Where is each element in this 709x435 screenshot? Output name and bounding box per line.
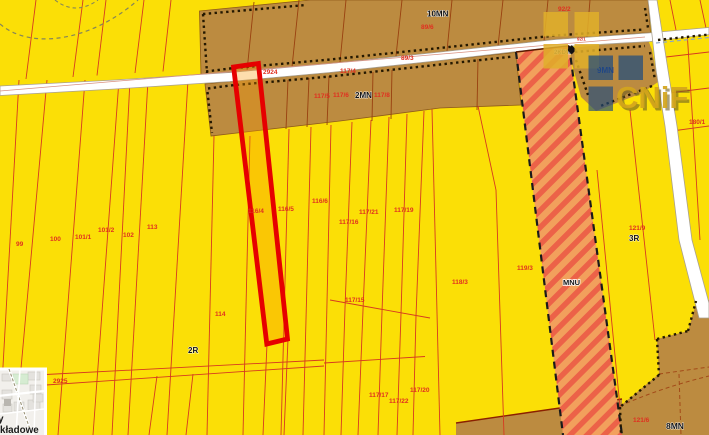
svg-text:MNU: MNU [563,278,580,287]
svg-text:101/1: 101/1 [75,234,92,241]
svg-text:117/21: 117/21 [359,209,379,216]
svg-text:117/16: 117/16 [339,219,359,226]
svg-text:10MN: 10MN [427,10,449,19]
svg-text:121/9: 121/9 [629,225,646,232]
svg-text:117/15: 117/15 [345,297,365,304]
svg-text:113: 113 [147,224,158,231]
svg-text:100: 100 [50,236,61,243]
svg-text:117/19: 117/19 [394,207,414,214]
svg-text:2925: 2925 [53,378,68,385]
svg-text:117/8: 117/8 [374,92,390,99]
svg-text:114: 114 [215,311,226,318]
svg-text:CNiF: CNiF [616,80,688,115]
svg-text:2R: 2R [188,346,198,355]
svg-text:89/3: 89/3 [401,55,414,62]
svg-text:116/6: 116/6 [312,198,328,205]
svg-text:101/2: 101/2 [98,227,115,234]
svg-text:117/4: 117/4 [340,68,356,75]
svg-text:117/20: 117/20 [410,387,430,394]
svg-text:kładowe: kładowe [0,425,39,435]
svg-text:92/2: 92/2 [558,6,571,13]
svg-text:117/6: 117/6 [333,92,349,99]
svg-text:8MN: 8MN [666,421,684,431]
svg-text:116/5: 116/5 [278,206,294,213]
svg-text:117/22: 117/22 [389,398,409,405]
svg-text:180/1: 180/1 [689,119,706,126]
svg-text:y: y [0,414,4,425]
svg-text:92/1: 92/1 [577,37,586,42]
svg-text:116/4: 116/4 [248,208,264,215]
svg-text:3R: 3R [629,234,639,243]
svg-text:89/6: 89/6 [421,24,434,31]
svg-text:121/6: 121/6 [633,417,650,424]
svg-text:117/17: 117/17 [369,392,389,399]
svg-text:117/5: 117/5 [314,93,330,100]
svg-text:2924: 2924 [263,69,278,76]
svg-text:118/3: 118/3 [452,279,468,286]
svg-text:99: 99 [16,241,24,248]
svg-text:2MN: 2MN [355,91,372,100]
svg-text:119/3: 119/3 [517,265,533,272]
svg-text:102: 102 [123,232,134,239]
